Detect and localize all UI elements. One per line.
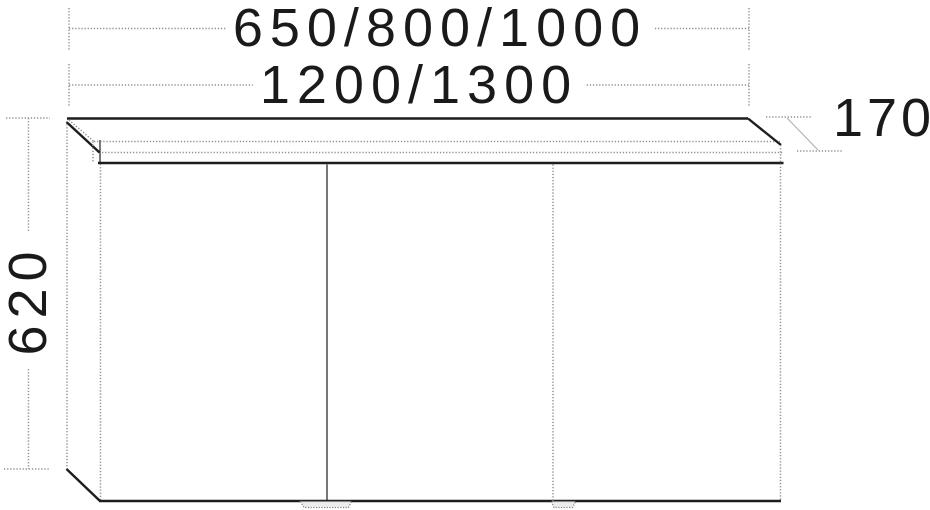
dimension-label-height: 620: [1, 232, 55, 367]
canopy-left-fascia-diagonal: [67, 122, 100, 153]
door-dividers: [301, 165, 576, 508]
dimension-depth: [766, 117, 843, 151]
technical-drawing-canvas: 650/800/1000 1200/1300 620 170: [0, 0, 930, 510]
dimension-label-depth: 170: [833, 91, 930, 145]
canopy-panel: [67, 119, 785, 164]
canopy-left-top-edge: [69, 120, 95, 142]
door-bottom-clip-right: [552, 502, 576, 508]
dimension-label-width-row2: 1200/1300: [253, 58, 585, 112]
cabinet-body: [67, 121, 782, 501]
dim-diagonal-connector: [787, 118, 818, 150]
body-bottom-left-diagonal: [67, 469, 101, 501]
dimension-label-width-row1: 650/800/1000: [226, 1, 654, 55]
door-bottom-clip-left: [301, 502, 352, 508]
